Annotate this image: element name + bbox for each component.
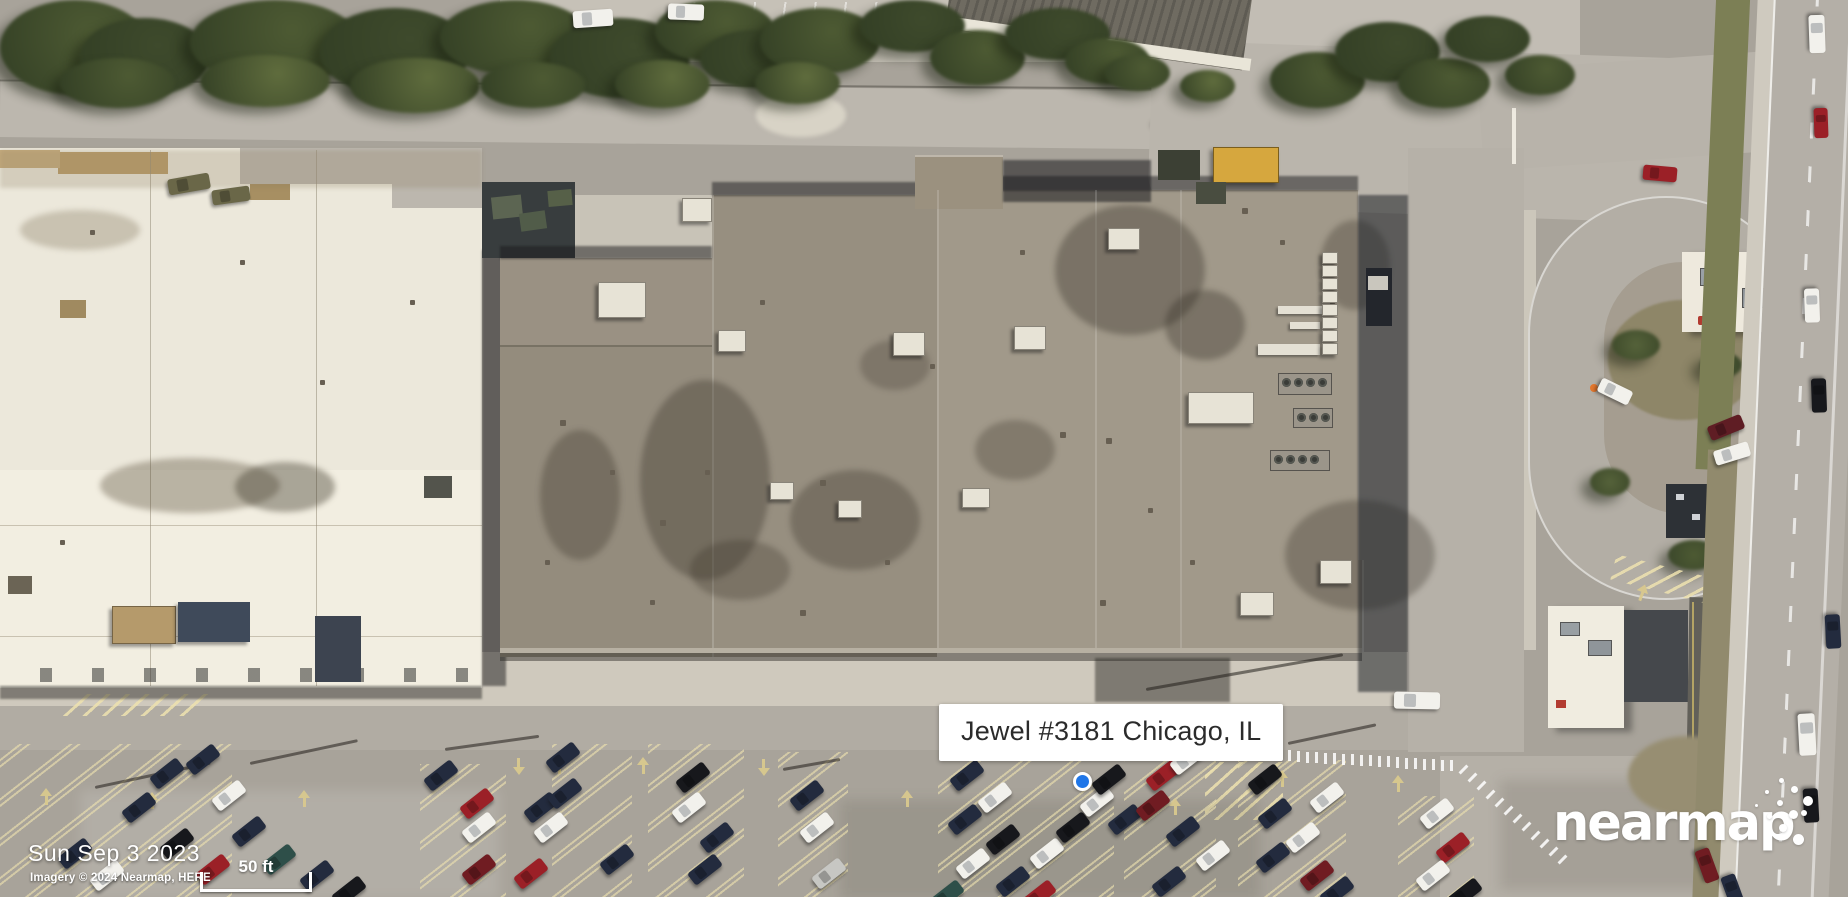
car bbox=[1247, 763, 1283, 796]
imagery-attribution: Imagery © 2024 Nearmap, HERE bbox=[30, 872, 211, 884]
car bbox=[1720, 873, 1746, 897]
car bbox=[513, 857, 549, 890]
car bbox=[1029, 837, 1065, 870]
capture-date: Sun Sep 3 2023 bbox=[28, 840, 200, 867]
car bbox=[1135, 789, 1171, 822]
scale-bar-label: 50 ft bbox=[203, 857, 309, 877]
car bbox=[811, 857, 847, 890]
car bbox=[799, 811, 835, 844]
car bbox=[1021, 879, 1057, 897]
nearmap-logo: nearmap bbox=[1553, 778, 1813, 868]
aerial-imagery-canvas[interactable] bbox=[0, 0, 1848, 897]
car bbox=[929, 879, 965, 897]
car bbox=[149, 757, 185, 790]
car bbox=[668, 3, 705, 20]
location-marker-icon[interactable] bbox=[1073, 772, 1092, 791]
car bbox=[231, 815, 267, 848]
car bbox=[1797, 713, 1816, 756]
car bbox=[1813, 108, 1828, 138]
car bbox=[985, 823, 1021, 856]
car bbox=[1165, 815, 1201, 848]
car bbox=[1808, 15, 1825, 54]
car bbox=[949, 759, 985, 792]
car bbox=[545, 741, 581, 774]
car bbox=[461, 853, 497, 886]
car bbox=[1394, 692, 1440, 710]
car bbox=[211, 185, 251, 205]
car bbox=[423, 759, 459, 792]
car bbox=[331, 875, 367, 897]
nearmap-pulse-icon bbox=[1749, 778, 1819, 858]
car bbox=[789, 779, 825, 812]
car bbox=[185, 743, 221, 776]
car bbox=[955, 847, 991, 880]
car bbox=[1596, 377, 1633, 405]
nearmap-viewer: Jewel #3181 Chicago, IL Sun Sep 3 2023 I… bbox=[0, 0, 1848, 897]
car bbox=[167, 172, 211, 195]
car bbox=[1419, 797, 1455, 830]
car bbox=[1415, 859, 1451, 892]
car bbox=[1151, 865, 1187, 897]
car bbox=[121, 791, 157, 824]
car bbox=[599, 843, 635, 876]
car bbox=[1257, 797, 1293, 830]
car bbox=[1642, 165, 1677, 183]
car bbox=[671, 791, 707, 824]
car bbox=[1255, 841, 1291, 874]
car bbox=[1804, 288, 1820, 323]
car bbox=[1195, 839, 1231, 872]
car bbox=[1713, 441, 1752, 466]
car bbox=[995, 865, 1031, 897]
car bbox=[1055, 811, 1091, 844]
car bbox=[687, 853, 723, 886]
car bbox=[1707, 414, 1746, 441]
place-label[interactable]: Jewel #3181 Chicago, IL bbox=[939, 704, 1283, 761]
car bbox=[1447, 877, 1483, 897]
vehicles bbox=[0, 0, 1848, 897]
car bbox=[1285, 821, 1321, 854]
car bbox=[947, 803, 983, 836]
car bbox=[699, 821, 735, 854]
car bbox=[1825, 614, 1842, 649]
car bbox=[675, 761, 711, 794]
car bbox=[977, 781, 1013, 814]
car bbox=[572, 9, 613, 29]
car bbox=[1811, 378, 1827, 413]
scale-bar: 50 ft bbox=[200, 872, 312, 892]
car bbox=[547, 777, 583, 810]
car bbox=[211, 779, 247, 812]
car bbox=[1309, 781, 1345, 814]
